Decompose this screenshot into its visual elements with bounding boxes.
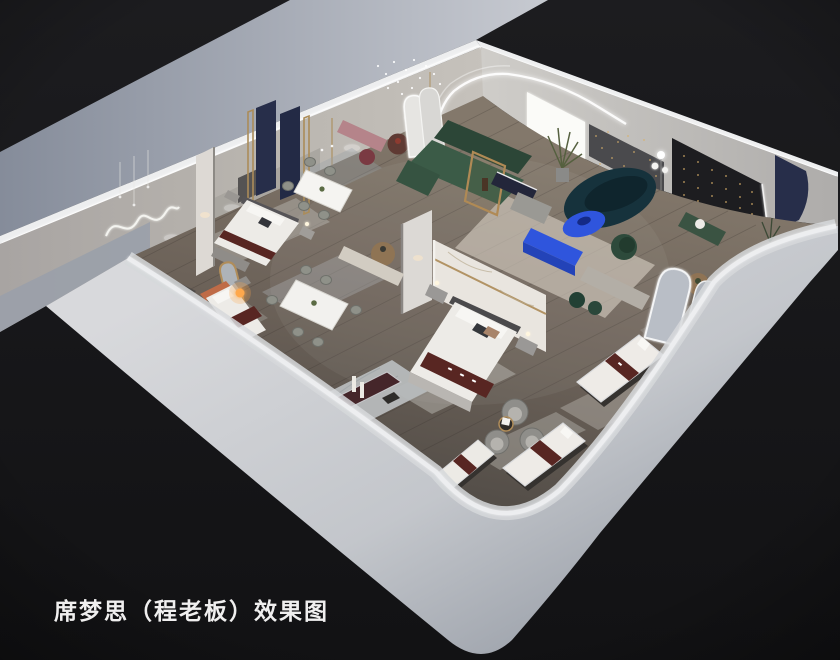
vignette xyxy=(0,0,840,660)
isometric-showroom-render xyxy=(0,0,840,660)
caption-text: 席梦思（程老板）效果图 xyxy=(54,592,329,626)
rendering-image: 席梦思（程老板）效果图 xyxy=(0,0,840,660)
